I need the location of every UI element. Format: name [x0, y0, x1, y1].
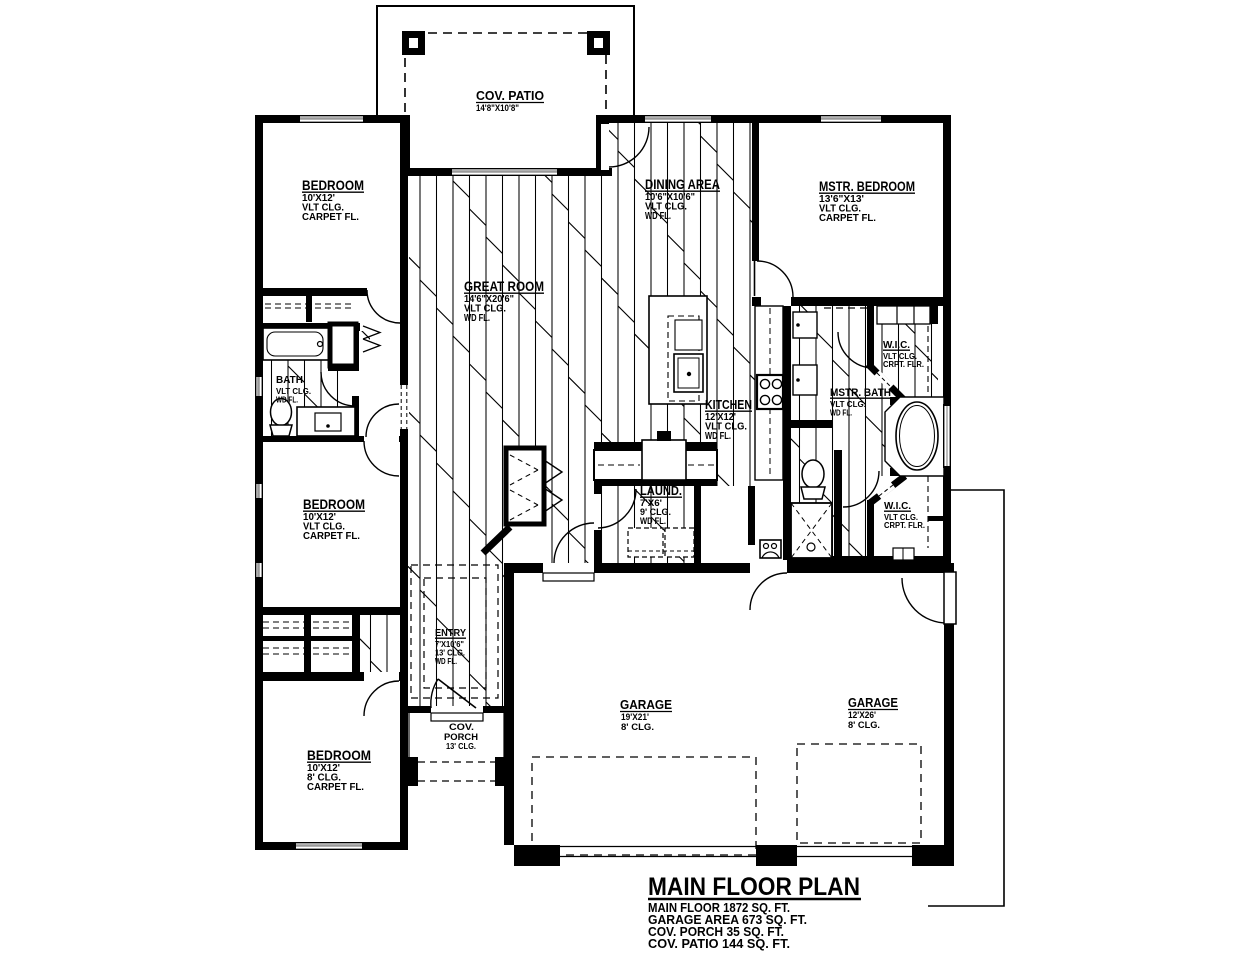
svg-text:CARPET FL.: CARPET FL. — [302, 212, 359, 223]
svg-text:CRPT. FLR.: CRPT. FLR. — [884, 521, 925, 530]
svg-text:DINING AREA: DINING AREA — [645, 176, 720, 192]
svg-text:MSTR. BEDROOM: MSTR. BEDROOM — [819, 178, 915, 194]
svg-text:BEDROOM: BEDROOM — [303, 496, 365, 512]
svg-text:ENTRY: ENTRY — [435, 628, 466, 639]
svg-text:WD FL.: WD FL. — [830, 408, 852, 418]
svg-text:W.I.C.: W.I.C. — [884, 501, 911, 512]
svg-text:8' CLG.: 8' CLG. — [621, 722, 654, 733]
svg-text:W.I.C.: W.I.C. — [883, 340, 910, 351]
svg-text:CARPET FL.: CARPET FL. — [819, 213, 876, 224]
svg-text:8' CLG.: 8' CLG. — [848, 720, 880, 731]
svg-text:WD FL.: WD FL. — [464, 313, 490, 324]
svg-text:CARPET FL.: CARPET FL. — [307, 782, 364, 793]
svg-text:MSTR. BATH: MSTR. BATH — [830, 387, 891, 399]
svg-text:WD FL.: WD FL. — [435, 657, 457, 666]
svg-text:WD FL.: WD FL. — [705, 431, 731, 442]
svg-text:MAIN FLOOR PLAN: MAIN FLOOR PLAN — [648, 873, 860, 901]
svg-text:WD FL.: WD FL. — [276, 395, 298, 405]
svg-text:KITCHEN: KITCHEN — [705, 398, 752, 412]
svg-text:WD FL.: WD FL. — [640, 516, 666, 526]
svg-text:COV. PATIO: COV. PATIO — [476, 88, 544, 103]
svg-text:LAUND.: LAUND. — [640, 484, 682, 498]
svg-text:GARAGE: GARAGE — [620, 697, 672, 712]
svg-text:GARAGE: GARAGE — [848, 695, 898, 710]
svg-text:WD FL.: WD FL. — [645, 211, 671, 222]
svg-text:BEDROOM: BEDROOM — [302, 177, 364, 193]
svg-text:CRPT. FLR.: CRPT. FLR. — [883, 360, 924, 369]
svg-text:CARPET FL.: CARPET FL. — [303, 531, 360, 542]
svg-text:GREAT ROOM: GREAT ROOM — [464, 278, 544, 294]
svg-text:13' CLG.: 13' CLG. — [446, 741, 476, 751]
svg-text:14'8"X10'8": 14'8"X10'8" — [476, 103, 519, 114]
svg-text:BATH: BATH — [276, 374, 303, 386]
svg-text:COV. PATIO 144 SQ. FT.: COV. PATIO 144 SQ. FT. — [648, 937, 790, 951]
svg-text:BEDROOM: BEDROOM — [307, 747, 371, 763]
